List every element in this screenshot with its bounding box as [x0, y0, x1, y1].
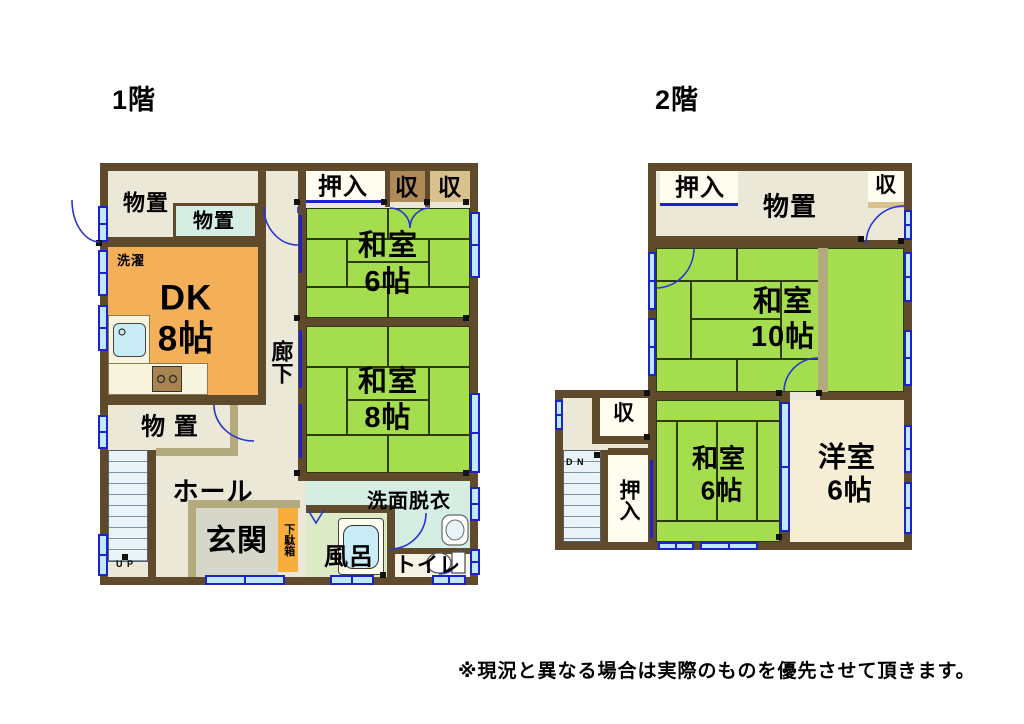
f1-entrance-door: [205, 575, 285, 585]
wall-end-square: [294, 199, 300, 205]
tl: [387, 326, 389, 366]
wall-end-square: [380, 572, 386, 578]
f2-washitsu10-door-arc: [656, 248, 694, 288]
f2-wall-green-bottom-r: [820, 392, 912, 400]
f2-oshiire-top-line: [660, 203, 738, 206]
f1-laundry-label: 洗濯: [117, 254, 145, 268]
f2-oshiire-top-label: 押入: [675, 175, 725, 200]
f1-genkan-label: 玄関: [206, 525, 268, 557]
tl: [656, 520, 780, 522]
f2-wall-oshiire-annex-top: [608, 448, 648, 455]
wall-end-square: [463, 199, 469, 205]
f1-washitsu8-size: 8帖: [364, 403, 411, 433]
f1-oshiire-door-line: [306, 200, 385, 203]
f1-fusuma: [299, 404, 302, 458]
f1-washitsu6-name: 和室: [358, 231, 418, 261]
f1-storage-tl-small-label: 物置: [193, 212, 235, 233]
f1-shu-b-label: 収: [438, 175, 462, 199]
f1-washroom-door-arc: [390, 513, 426, 549]
f2-window: [648, 252, 656, 310]
wall-end-square: [381, 199, 387, 205]
wall-end-square: [858, 236, 864, 242]
f1-fusuma: [299, 330, 302, 388]
f1-wall-washitsu-mid: [306, 318, 470, 326]
wall-end-square: [463, 470, 469, 476]
f2-vestibule-door-arc: [866, 206, 904, 244]
f2-shu-top-label: 収: [875, 175, 897, 197]
f1-storage2-label: 物 置: [141, 414, 199, 439]
f2-monooki-label: 物置: [763, 193, 817, 220]
f1-sink-faucet: [113, 323, 146, 357]
f1-wall-washitsu8-bottom: [306, 473, 470, 481]
f1-stove-burners: [152, 366, 182, 392]
f2-window: [648, 318, 656, 376]
f1-washitsu6-size: 6帖: [364, 267, 411, 297]
f2-dn-label: D N: [566, 458, 585, 467]
f1-bath-fold-door: [306, 508, 328, 526]
tl: [736, 248, 738, 280]
wall-end-square: [463, 315, 469, 321]
tl: [676, 420, 678, 520]
tl: [756, 420, 758, 520]
disclaimer-note: ※現況と異なる場合は実際のものを優先させて頂きます。: [458, 662, 976, 682]
f1-washitsu8-name: 和室: [358, 367, 418, 397]
f1-window: [470, 393, 480, 473]
f2-window: [904, 210, 912, 240]
f1-washbasin-icon: [441, 514, 469, 546]
f2-shu-mid-label: 収: [613, 403, 635, 425]
f2-washitsu10-name: 和室: [753, 287, 813, 317]
f2-window: [904, 425, 912, 473]
f1-rouka-label: 廊下: [269, 340, 292, 384]
f1-wall-dk-bottom: [100, 395, 266, 405]
f1-up-label: U P: [116, 560, 134, 569]
f1-hall-door-arc: [214, 405, 254, 441]
f1-window: [470, 549, 480, 575]
f2-sliding-door: [780, 402, 790, 532]
wall-end-square: [424, 199, 430, 205]
f1-hall-label: ホール: [172, 478, 253, 505]
floor2-title: 2階: [655, 86, 699, 114]
f1-window: [470, 487, 480, 521]
tl: [690, 318, 782, 320]
f2-youshitsu-size: 6帖: [827, 475, 873, 504]
f1-window: [470, 212, 480, 278]
wall-end-square: [644, 390, 650, 396]
wall-end-square: [644, 434, 650, 440]
f1-oshiire-label: 押入: [318, 174, 368, 199]
f2-wall-green-bottom-l: [648, 392, 784, 400]
floor-plan-canvas: 1階2階※現況と異なる場合は実際のものを優先させて頂きます。物置物置押入収収和室…: [0, 0, 1024, 724]
f2-oshiire-annex-line: [650, 460, 653, 538]
f1-fusuma: [299, 215, 302, 273]
f1-khaki-genkan-left: [188, 500, 196, 577]
f2-youshitsu-name: 洋室: [818, 442, 876, 471]
f2-window: [904, 330, 912, 386]
tl: [656, 420, 780, 422]
f1-window: [98, 415, 108, 449]
f1-exterior-door-arc: [72, 200, 100, 242]
f1-corridor-door-arc: [264, 207, 298, 245]
f1-toilet-label: トイレ: [395, 555, 461, 577]
f1-dk-size: 8帖: [158, 322, 214, 359]
f1-shu-a-label: 収: [395, 175, 419, 199]
f1-wall-stairs-right: [148, 450, 156, 577]
f1-khaki-storage2-bottom: [156, 448, 238, 456]
f2-washitsu10-size: 10帖: [751, 322, 815, 352]
f2-window: [658, 542, 694, 550]
f1-getabako-label: 下駄箱: [282, 524, 294, 557]
wall-end-square: [776, 390, 782, 396]
f1-furo-label: 風呂: [324, 544, 374, 569]
f1-window: [330, 575, 374, 585]
f1-storage-tl-label: 物置: [123, 191, 169, 214]
f1-wall-dk-top: [100, 237, 266, 247]
f2-window: [555, 400, 563, 430]
wall-end-square: [594, 452, 600, 458]
f2-washitsu6-size: 6帖: [701, 477, 743, 504]
f2-window: [700, 542, 758, 550]
wall-end-square: [776, 534, 782, 540]
wall-end-square: [294, 315, 300, 321]
f1-window: [98, 250, 108, 296]
f2-green-bottom-door-arc: [784, 358, 818, 392]
wall-end-square: [294, 470, 300, 476]
f2-divider-khaki: [818, 248, 828, 392]
f2-wall-top-strip: [648, 236, 864, 248]
tl: [346, 399, 430, 401]
tl: [736, 358, 738, 392]
f1-window: [98, 305, 108, 351]
f2-washitsu6-name: 和室: [692, 445, 746, 472]
f2-oshiire-side-label: 押入: [617, 479, 639, 521]
f2-wall-shu-bottom: [592, 436, 648, 444]
f1-stairs: [108, 450, 148, 562]
f1-senmen-label: 洗面脱衣: [367, 492, 451, 513]
floor1-title: 1階: [112, 86, 156, 114]
f2-wall-stairs-right: [601, 450, 608, 542]
f1-window: [98, 534, 108, 576]
f2-window: [904, 252, 912, 302]
f2-window: [904, 482, 912, 534]
f1-dk-name: DK: [160, 281, 213, 318]
f1-washitsu6-double-door: [388, 208, 432, 230]
tl: [387, 434, 389, 473]
